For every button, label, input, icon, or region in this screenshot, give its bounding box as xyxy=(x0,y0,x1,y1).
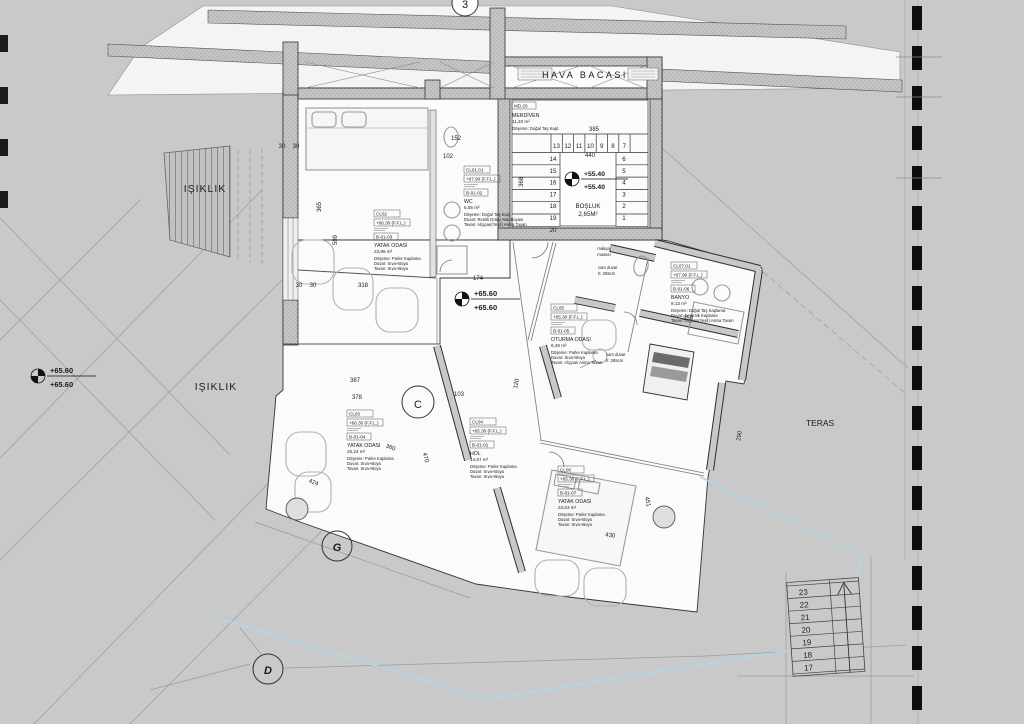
room-area: 5,55 m² xyxy=(464,205,480,210)
room-ceiling-spec: Tavan: Sıva+Boya xyxy=(558,522,593,527)
boundary-dash xyxy=(912,126,922,150)
boundary-dash xyxy=(912,686,922,710)
boundary-dash xyxy=(0,35,8,52)
isiklik-lower-label: IŞIKLIK xyxy=(195,381,238,393)
room-code: CL03 xyxy=(349,411,360,416)
stair-step-number: 2 xyxy=(622,203,626,210)
room-tag: B-01-05 xyxy=(553,328,570,333)
boundary-dash xyxy=(912,326,922,350)
outdoor-step-number: 21 xyxy=(800,613,810,623)
room-level: +66.30 (F.F.L.) xyxy=(349,420,379,425)
stair-step-number: 18 xyxy=(550,203,557,210)
stair-step-number: 17 xyxy=(550,191,557,198)
room-code: CL05 xyxy=(553,305,564,310)
hava-bacasi-label: HAVA BACASI xyxy=(542,70,628,80)
room-area: 14,67 m² xyxy=(470,457,489,462)
room-area: 26,24 m² xyxy=(347,449,366,454)
level-value: +65.60 xyxy=(474,289,497,298)
outdoor-step-number: 18 xyxy=(803,650,813,660)
isiklik-upper-label: IŞIKLIK xyxy=(184,183,227,195)
room-area: 8,49 m² xyxy=(551,343,567,348)
level-value: +55.40 xyxy=(584,171,605,178)
dimension-text: 174 xyxy=(473,276,484,282)
room-area: 9,13 m² xyxy=(671,301,687,306)
dimension-text: 152 xyxy=(451,136,462,142)
room-code: CL07.01 xyxy=(673,263,691,268)
teras-label: TERAS xyxy=(806,418,835,428)
level-value: +55.40 xyxy=(584,184,605,191)
dimension-text: 368 xyxy=(519,176,525,187)
boundary-dash xyxy=(912,86,922,110)
partition-wall xyxy=(430,110,436,277)
stair-step-number: 20 xyxy=(550,227,557,234)
room-level: +66.30 (F.F.L.) xyxy=(376,220,406,225)
wardrobe xyxy=(643,344,694,400)
boundary-dash xyxy=(912,286,922,310)
stair-step-number: 19 xyxy=(550,215,557,222)
grid-bubble-g: G xyxy=(333,542,342,554)
note-makyaj: masası xyxy=(597,252,611,257)
dimension-text: 30 xyxy=(293,144,300,150)
dimension-text: 387 xyxy=(350,378,361,384)
room-tag: B-01-02 xyxy=(466,190,483,195)
stair-step-number: 1 xyxy=(622,215,626,222)
room-tag: B-01-04 xyxy=(349,434,366,439)
room-area: 23,95 m² xyxy=(374,249,393,254)
room-area: 23,63 m² xyxy=(558,505,577,510)
boundary-dash xyxy=(912,606,922,630)
stair-step-number: 3 xyxy=(622,191,626,198)
outdoor-step-number: 22 xyxy=(799,600,809,610)
boundary-dash xyxy=(912,46,922,70)
stair-step-number: 4 xyxy=(622,180,626,187)
isiklik-hatch xyxy=(164,146,230,257)
room-level: +65.30 (F.F.L.) xyxy=(472,428,502,433)
note-cam-duvar: cam duvar xyxy=(598,265,618,270)
room-ceiling-spec: Tavan: Alçıpan(Yeşil) Asma Tavan xyxy=(464,222,527,227)
note-makyaj: makyaj xyxy=(597,246,610,251)
dimension-text: 365 xyxy=(317,201,323,212)
stair-step-number: 12 xyxy=(564,143,571,150)
boundary-dash xyxy=(912,6,922,30)
boundary-dash xyxy=(912,566,922,590)
room-ceiling-spec: Tavan: Sıva+Boya xyxy=(470,474,505,479)
room-ceiling-spec: Tavan: Alçıpan(Yeşil) Asma Tavan xyxy=(671,318,734,323)
outdoor-step-number: 23 xyxy=(799,588,809,598)
stair-step-number: 11 xyxy=(576,143,583,150)
level-value: +65.60 xyxy=(50,380,73,389)
stair-step-number: 10 xyxy=(587,143,594,150)
dimension-text: 378 xyxy=(352,395,363,401)
dimension-text: 318 xyxy=(358,283,369,289)
dimension-text: 385 xyxy=(589,127,600,133)
room-code: CL01.01 xyxy=(466,167,484,172)
column xyxy=(286,498,308,520)
outdoor-step-number: 19 xyxy=(802,638,812,648)
grid-bubble-c: C xyxy=(414,399,422,411)
outdoor-step-number: 17 xyxy=(804,663,814,673)
boundary-dash xyxy=(912,446,922,470)
dimension-text: 599 xyxy=(333,234,339,245)
room-code: CL04 xyxy=(472,419,483,424)
floorplan-canvas: 3 C G D HAVA BACASI IŞIKLIK IŞIKLIK TERA… xyxy=(0,0,1024,724)
boundary-dash xyxy=(912,246,922,270)
dimension-text: 440 xyxy=(585,153,596,159)
column xyxy=(653,506,675,528)
level-value: +65.60 xyxy=(50,366,73,375)
room-floor-spec: Döşeme: Doğal Taş Kapl. xyxy=(512,126,559,131)
stair-step-number: 16 xyxy=(550,180,557,187)
grid-bubble-d: D xyxy=(264,665,272,677)
room-area: 11,32 m² xyxy=(512,119,530,124)
room-ceiling-spec: Tavan: Sıva+Boya xyxy=(374,266,409,271)
dimension-text: 102 xyxy=(443,154,454,160)
note-cam-duvar: h: 265cm xyxy=(606,358,624,363)
room-code: MD.20 xyxy=(514,104,528,109)
bosluk-label: BOŞLUK xyxy=(575,203,601,210)
stair-step-number: 7 xyxy=(623,143,627,150)
dimension-text: 30 xyxy=(296,283,303,289)
note-cam-duvar: h: 265cm xyxy=(598,271,616,276)
stair-step-number: 13 xyxy=(553,143,560,150)
bosluk-area: 2,65M² xyxy=(578,211,597,218)
room-tag: B-01-03 xyxy=(376,234,393,239)
note-cam-duvar: cam duvar xyxy=(606,352,626,357)
boundary-dash xyxy=(0,87,8,104)
grid-bubble-3: 3 xyxy=(462,0,468,11)
stair-step-number: 15 xyxy=(550,168,557,175)
boundary-dash xyxy=(912,406,922,430)
boundary-dash xyxy=(0,191,8,208)
boundary-dash xyxy=(0,139,8,156)
boundary-dash xyxy=(912,486,922,510)
room-ceiling-spec: Tavan: Sıva+Boya xyxy=(347,466,382,471)
room-tag: B-01-07 xyxy=(560,490,577,495)
room-code: CL02 xyxy=(376,211,387,216)
room-ceiling-spec: Tavan: Alçıpan Asma Tavan xyxy=(551,360,603,365)
boundary-dash xyxy=(912,526,922,550)
stair-step-number: 8 xyxy=(611,143,615,150)
room-tag: B-01-01 xyxy=(472,442,489,447)
room-level: +67.90 (F.F.L.) xyxy=(466,176,496,181)
room-level: +65.30 (F.F.L.) xyxy=(560,476,590,481)
room-level: +67.90 (F.F.L.) xyxy=(673,272,703,277)
outdoor-step-number: 20 xyxy=(801,625,811,635)
dimension-text: 350 xyxy=(683,316,694,322)
boundary-dash xyxy=(912,206,922,230)
dimension-text: 103 xyxy=(454,392,465,398)
boundary-dash xyxy=(912,366,922,390)
stair-step-number: 5 xyxy=(622,168,626,175)
floorplan-svg: 3 C G D HAVA BACASI IŞIKLIK IŞIKLIK TERA… xyxy=(0,0,1024,724)
level-value: +65.60 xyxy=(474,303,497,312)
dimension-text: 30 xyxy=(310,283,317,289)
dimension-text: 30 xyxy=(279,144,286,150)
room-tag: B-01-06 xyxy=(673,286,690,291)
room-code: CL06 xyxy=(560,467,571,472)
stair-step-number: 9 xyxy=(600,143,604,150)
room-name: MERDİVEN xyxy=(512,112,540,119)
room-level: +65.30 (F.F.L.) xyxy=(553,314,583,319)
boundary-dash xyxy=(912,646,922,670)
stair-step-number: 14 xyxy=(550,156,557,163)
dimension-text: 290 xyxy=(736,430,743,441)
stair-step-number: 6 xyxy=(622,156,626,163)
